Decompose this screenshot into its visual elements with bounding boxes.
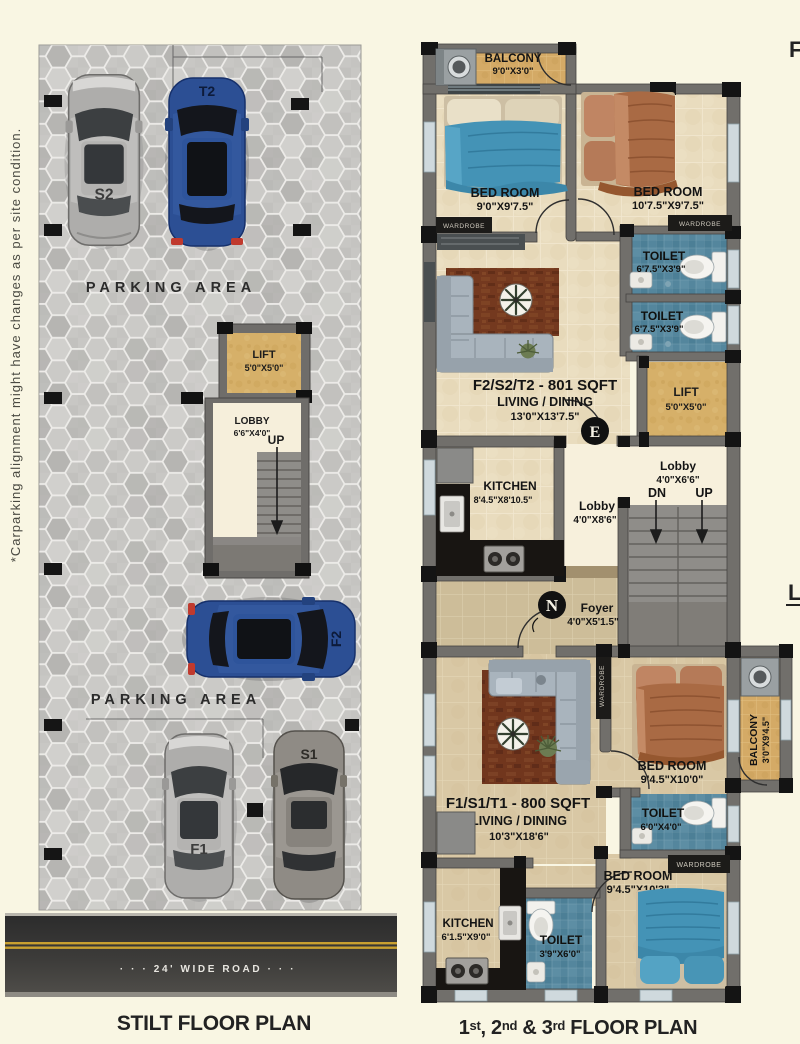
svg-text:BALCONY: BALCONY [748, 714, 760, 766]
svg-text:4'0"X6'6": 4'0"X6'6" [656, 475, 699, 486]
svg-text:5'0"X5'0": 5'0"X5'0" [666, 402, 707, 413]
svg-text:F2/S2/T2 - 801 SQFT: F2/S2/T2 - 801 SQFT [473, 377, 617, 394]
svg-text:KITCHEN: KITCHEN [442, 918, 493, 930]
svg-text:3'9"X6'0": 3'9"X6'0" [540, 949, 581, 960]
svg-text:WARDROBE: WARDROBE [599, 665, 606, 707]
svg-text:*Carparking alignment might ha: *Carparking alignment might have changes… [8, 128, 23, 562]
svg-text:LIFT: LIFT [673, 385, 699, 399]
svg-text:6'7.5"X3'9": 6'7.5"X3'9" [637, 264, 686, 275]
svg-text:F2: F2 [328, 631, 344, 648]
svg-text:F1/S1/T1 - 800 SQFT: F1/S1/T1 - 800 SQFT [446, 795, 590, 812]
svg-text:4'0"X5'1.5": 4'0"X5'1.5" [567, 617, 619, 628]
svg-text:8'4.5"X8'10.5": 8'4.5"X8'10.5" [474, 495, 533, 505]
svg-text:6'0"X4'0": 6'0"X4'0" [641, 822, 682, 833]
svg-text:LIVING / DINING: LIVING / DINING [471, 814, 567, 828]
svg-text:BED ROOM: BED ROOM [638, 759, 707, 773]
svg-text:LIFT: LIFT [252, 349, 275, 361]
svg-text:F: F [789, 37, 800, 62]
svg-text:PARKING AREA: PARKING AREA [91, 692, 261, 708]
svg-text:9'0"X3'0": 9'0"X3'0" [493, 66, 534, 77]
svg-text:6'7.5"X3'9": 6'7.5"X3'9" [635, 324, 684, 335]
svg-text:9'0"X9'7.5": 9'0"X9'7.5" [477, 201, 534, 213]
svg-text:WARDROBE: WARDROBE [679, 221, 721, 228]
svg-text:4'0"X8'6": 4'0"X8'6" [573, 515, 616, 526]
svg-text:LIVING / DINING: LIVING / DINING [497, 395, 593, 409]
svg-text:BED ROOM: BED ROOM [604, 869, 673, 883]
svg-text:6'6"X4'0": 6'6"X4'0" [234, 428, 271, 438]
svg-text:TOILET: TOILET [642, 806, 685, 820]
svg-text:L: L [788, 580, 800, 605]
svg-text:BALCONY: BALCONY [485, 53, 542, 65]
svg-text:TOILET: TOILET [540, 933, 583, 947]
svg-text:TOILET: TOILET [641, 309, 684, 323]
svg-text:UP: UP [695, 486, 712, 500]
svg-text:KITCHEN: KITCHEN [483, 479, 536, 493]
svg-text:Lobby: Lobby [579, 499, 615, 513]
svg-text:S1: S1 [300, 746, 317, 762]
svg-text:13'0"X13'7.5": 13'0"X13'7.5" [511, 411, 580, 423]
svg-text:T2: T2 [199, 83, 216, 99]
svg-text:S2: S2 [94, 187, 113, 204]
svg-text:Foyer: Foyer [581, 601, 614, 615]
svg-text:3'0"X9'4.5": 3'0"X9'4.5" [761, 717, 771, 763]
svg-text:6'1.5"X9'0": 6'1.5"X9'0" [442, 932, 491, 943]
svg-text:TOILET: TOILET [643, 249, 686, 263]
svg-text:BED ROOM: BED ROOM [471, 186, 540, 200]
svg-text:E: E [590, 424, 601, 441]
svg-text:9'4.5"X10'0": 9'4.5"X10'0" [641, 774, 704, 786]
svg-text:PARKING AREA: PARKING AREA [86, 280, 256, 296]
svg-text:10'7.5"X9'7.5": 10'7.5"X9'7.5" [632, 200, 704, 212]
svg-text:Lobby: Lobby [660, 459, 696, 473]
svg-text:N: N [546, 596, 559, 615]
svg-text:10'3"X18'6": 10'3"X18'6" [489, 831, 549, 843]
svg-text:· · · 24' WIDE ROAD · · ·: · · · 24' WIDE ROAD · · · [120, 964, 296, 975]
svg-text:F1: F1 [190, 841, 208, 858]
svg-text:WARDROBE: WARDROBE [677, 862, 722, 869]
svg-text:WARDROBE: WARDROBE [443, 223, 485, 230]
svg-text:1st, 2nd & 3rd FLOOR PLAN: 1st, 2nd & 3rd FLOOR PLAN [459, 1017, 698, 1039]
svg-text:LOBBY: LOBBY [235, 416, 270, 427]
svg-text:DN: DN [648, 486, 666, 500]
svg-text:STILT FLOOR PLAN: STILT FLOOR PLAN [117, 1012, 311, 1035]
svg-text:BED ROOM: BED ROOM [634, 185, 703, 199]
svg-text:UP: UP [268, 433, 285, 447]
svg-text:5'0"X5'0": 5'0"X5'0" [245, 363, 284, 373]
